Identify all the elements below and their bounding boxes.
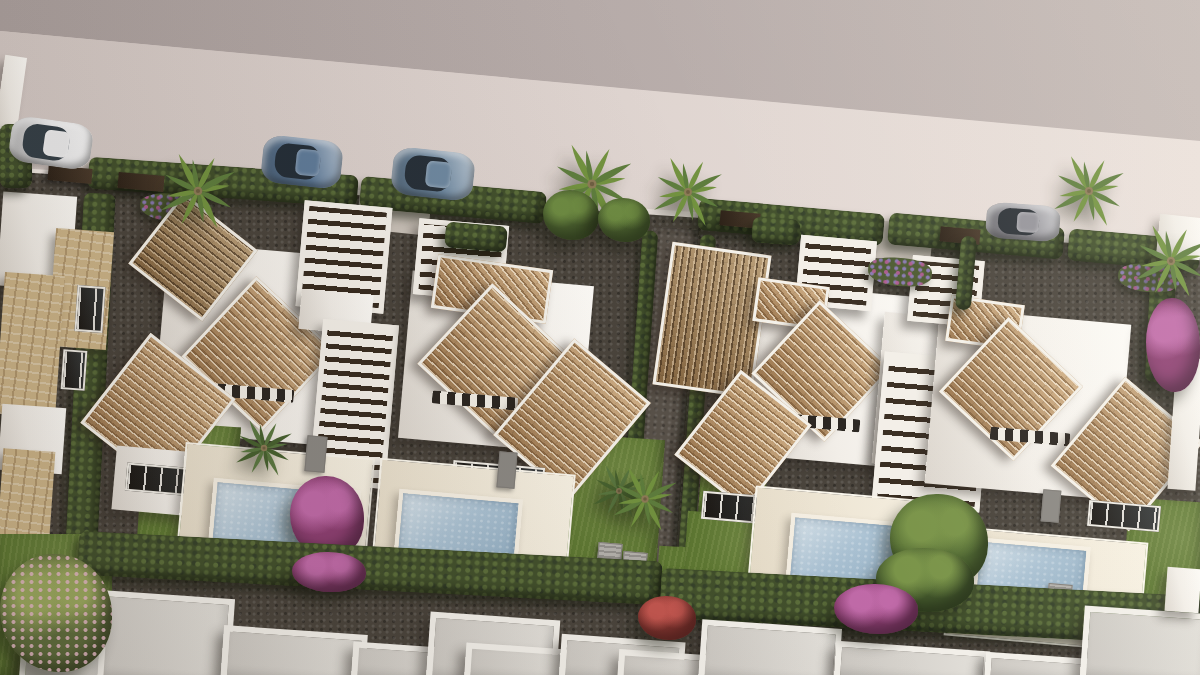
aerial-villa-render bbox=[0, 0, 1200, 675]
sunlight-overlay bbox=[0, 0, 1200, 675]
